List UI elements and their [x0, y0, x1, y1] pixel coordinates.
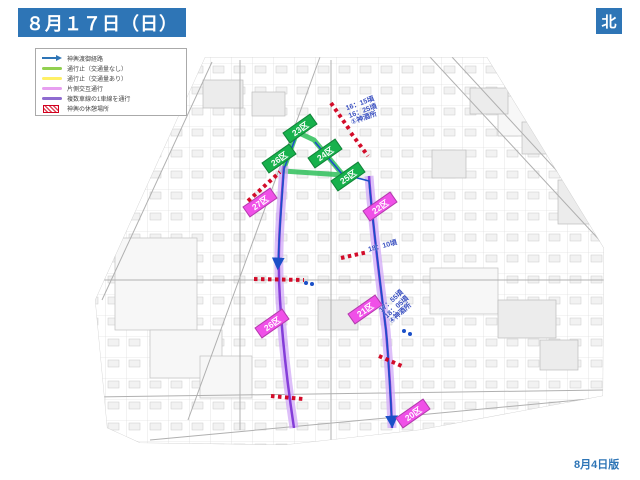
legend-label: 神輿の休憩場所 — [67, 104, 109, 113]
green-line-icon — [42, 64, 62, 72]
legend-item-procession-route: 神輿渡御経路 — [42, 53, 186, 63]
legend-item-closed-with-traffic: 通行止（交通量あり） — [42, 73, 186, 83]
legend-item-closed-no-traffic: 通行止（交通量なし） — [42, 63, 186, 73]
legend-label: 片側交互通行 — [67, 84, 103, 93]
rest-area-icon — [42, 104, 62, 112]
legend-item-rest-area: 神輿の休憩場所 — [42, 103, 186, 113]
legend-label: 神輿渡御経路 — [67, 54, 103, 63]
legend-label: 通行止（交通量なし） — [67, 64, 127, 73]
slide: 23区 24区 25区 26区 27区 22区 21区 26区 20区 16：1… — [0, 0, 640, 480]
legend-label: 通行止（交通量あり） — [67, 74, 127, 83]
legend-item-one-lane: 複数車線の1車線を通行 — [42, 93, 186, 103]
legend-item-alternating: 片側交互通行 — [42, 83, 186, 93]
railway-line — [542, 88, 614, 140]
legend: 神輿渡御経路 通行止（交通量なし） 通行止（交通量あり） 片側交互通行 複数車線… — [35, 48, 187, 116]
yellow-line-icon — [42, 74, 62, 82]
edition-label: 8月4日版 — [574, 456, 619, 472]
north-indicator: 北 — [596, 8, 622, 34]
violet-line-icon — [42, 84, 62, 92]
legend-label: 複数車線の1車線を通行 — [67, 94, 130, 103]
route-arrow-icon — [42, 54, 62, 62]
page-title: ８月１７日（日） — [18, 8, 186, 37]
purple-line-icon — [42, 94, 62, 102]
